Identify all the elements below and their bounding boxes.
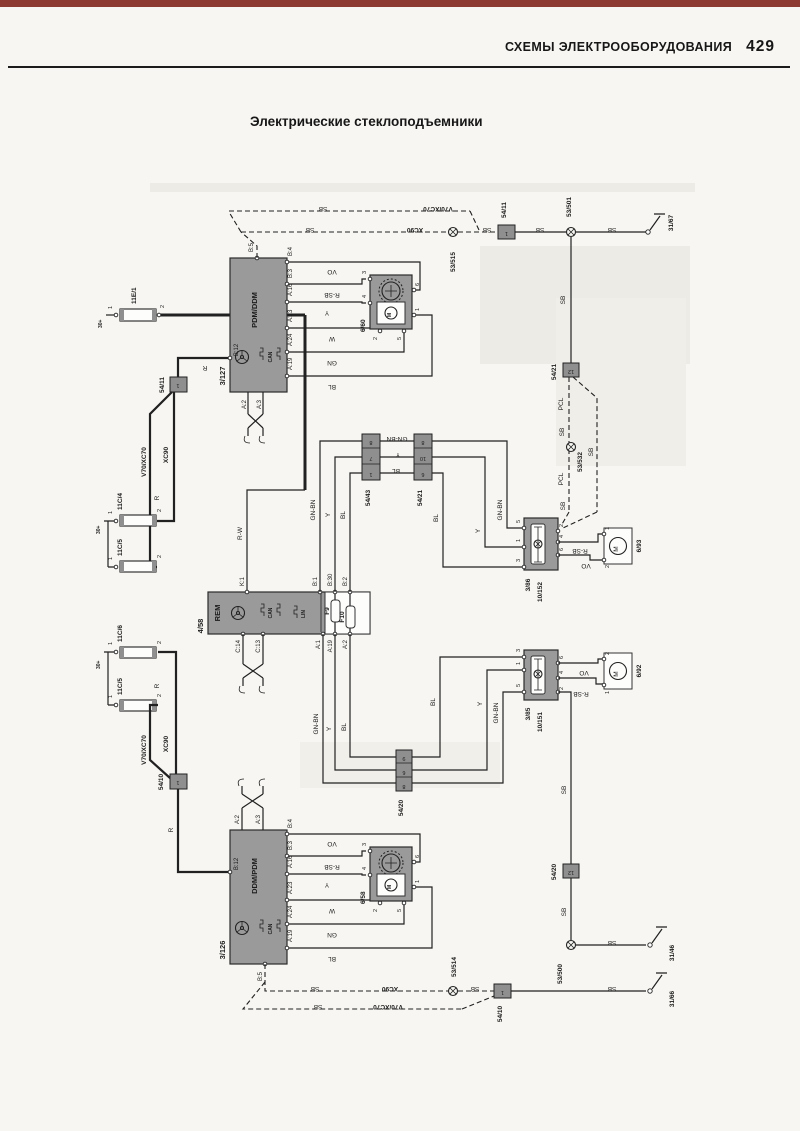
can-bus-label: CAN xyxy=(268,923,274,934)
variant-links-top: V70/XC70 XC90 R xyxy=(141,392,174,567)
wire-label-gn: GN xyxy=(327,931,337,938)
block-pin: 8 xyxy=(402,783,405,789)
wire-label-sb: SB xyxy=(608,985,617,992)
wire-label-y: Y xyxy=(326,726,333,731)
wiring-diagram: 30+ 1 11E/1 2 R-W 1 54/11 R V70/XC70 XC9… xyxy=(0,0,800,1131)
variant-v70-label: V70/XC70 xyxy=(373,1003,403,1010)
unit-pin: 4 xyxy=(362,295,368,298)
block-pin: 10 xyxy=(420,455,426,461)
wire-label-rsb: R-SB xyxy=(572,547,588,554)
fuse-11c4-label: 11C/4 xyxy=(117,493,124,510)
block-pin: 9 xyxy=(402,755,405,761)
connector-pin: 1 xyxy=(501,989,504,995)
battery-30-label: 30+ xyxy=(98,319,104,328)
switch-3-86-id2: 10/152 xyxy=(537,582,544,602)
module-rem-id: 4/58 xyxy=(196,619,205,634)
wire-label-sb: SB xyxy=(559,428,566,437)
variant-v70-label: V70/XC70 xyxy=(141,735,148,765)
fuse-pin: 1 xyxy=(108,695,114,698)
fuse-11c5-label: 11C/5 xyxy=(117,678,124,695)
wire-label-r: R xyxy=(168,827,175,832)
wire-label-bl: BL xyxy=(433,514,440,522)
fuse-pin: 1 xyxy=(108,511,114,514)
pin-a16: A:16 xyxy=(288,283,294,296)
module-rem-name: REM xyxy=(213,605,222,622)
rem-fuse-f10: F10 xyxy=(339,611,346,623)
wire-label-sb: SB xyxy=(608,226,617,233)
fuse-pin: 1 xyxy=(108,306,114,309)
unit-pin: 5 xyxy=(397,337,403,340)
pin-a23: A:23 xyxy=(288,309,294,322)
window-unit-6-60: M 3 4 6 1 2 5 6/60 xyxy=(360,271,421,340)
switch-pin: 5 xyxy=(516,520,522,523)
wire-label-bl: BL xyxy=(430,698,437,706)
ground-31-66-label: 31/66 xyxy=(669,990,676,1007)
window-unit-6-58: M 3 4 6 1 2 5 6/58 xyxy=(360,843,421,912)
wire-label-sb: SB xyxy=(483,226,492,233)
pin-a19: A:19 xyxy=(288,357,294,370)
wire-label-sb: SB xyxy=(560,296,567,305)
motor-letter: M xyxy=(613,671,620,676)
connector-54-11-right-label: 54/11 xyxy=(501,202,508,218)
fuse-group-rear: 30+ 1 1 11C/6 11C/5 2 2 V70/XC70 XC90 R … xyxy=(96,625,230,872)
pin-a1: A:1 xyxy=(316,639,322,649)
pin-b5: B:5 xyxy=(258,971,264,981)
pin-a24: A:24 xyxy=(288,333,294,346)
wire-label-sb: SB xyxy=(319,205,328,212)
pin-a19: A:19 xyxy=(328,639,334,652)
variant-xc90-label: XC90 xyxy=(163,446,170,463)
pin-a19: A:19 xyxy=(288,929,294,942)
wire-label-gnbn: GN-BN xyxy=(310,499,317,520)
module-ddm-id: 3/126 xyxy=(218,941,227,960)
joint-53-514-label: 53/514 xyxy=(451,957,458,977)
module-pdm-id: 3/127 xyxy=(218,367,227,386)
block-pin: 6 xyxy=(402,769,405,775)
wire-label-sb: SB xyxy=(561,786,568,795)
fuse-pin: 2 xyxy=(160,305,166,308)
pin-b3: B:3 xyxy=(288,268,294,278)
unit-6-60-label: 6/60 xyxy=(360,319,367,332)
ground-31-67-label: 31/67 xyxy=(668,214,675,231)
joint-53-501-label: 53/501 xyxy=(566,197,573,217)
wire-label-sb: SB xyxy=(471,985,480,992)
block-pin: 7 xyxy=(369,455,372,461)
wire-label-r: R xyxy=(202,364,207,371)
fuse-pin: 2 xyxy=(157,555,163,558)
connector-54-10-label: 54/10 xyxy=(158,773,165,790)
switch-3-85-id: 3/85 xyxy=(525,707,532,720)
wire-label-vo: VO xyxy=(579,669,588,676)
connector-54-20-label: 54/20 xyxy=(551,863,558,880)
variant-xc90-label: XC90 xyxy=(163,735,170,752)
variant-xc90-label: XC90 xyxy=(381,985,398,992)
wire-label-rsb: R-SB xyxy=(324,291,340,298)
wire-label-rw: R-W xyxy=(237,526,244,540)
connector-pin: 1 xyxy=(505,230,508,236)
battery-30-label: 30+ xyxy=(96,525,102,534)
wire-label-vo: VO xyxy=(581,562,590,569)
joint-53-500-label: 53/500 xyxy=(557,964,564,984)
block-pin: 6 xyxy=(421,471,424,477)
wire-label-w: W xyxy=(328,907,335,914)
pin-a3: A:3 xyxy=(257,399,263,409)
switch-3-86-id: 3/86 xyxy=(525,578,532,591)
wire-label-y: Y xyxy=(325,512,332,517)
connector-pin: 12 xyxy=(568,869,574,875)
wire-label-r: R xyxy=(154,683,161,688)
switch-3-86: 5 1 3 2 4 6 3/86 10/152 R-SB VO M 1 2 6/… xyxy=(516,518,643,602)
pin-b12: B:12 xyxy=(234,857,240,870)
connector-54-20-block-label: 54/20 xyxy=(398,799,405,816)
motor-letter: M xyxy=(387,313,393,317)
wire-label-bl: BL xyxy=(340,511,347,519)
wire-label-y: Y xyxy=(395,451,400,458)
pin-b12: B:12 xyxy=(234,343,240,356)
bottom-ground-run: SB XC90 SB SB V70/XC70 53/514 1 54/10 SB… xyxy=(243,957,676,1022)
can-bus-label: CAN xyxy=(268,607,274,618)
pin-b2: B:2 xyxy=(343,576,349,586)
switch-pin: 5 xyxy=(516,684,522,687)
wire-label-gnbn: GN-BN xyxy=(497,499,504,520)
switch-3-85-id2: 10/151 xyxy=(537,712,544,732)
variant-v70-label: V70/XC70 xyxy=(141,447,148,477)
rem-upper-wires: GN-BN Y BL 8 7 1 54/43 8 10 6 54/21 GN-B… xyxy=(310,434,522,592)
ground-31-46-label: 31/46 xyxy=(669,944,676,961)
wire-label-w: W xyxy=(328,335,335,342)
manual-page: СХЕМЫ ЭЛЕКТРООБОРУДОВАНИЯ429 Электрическ… xyxy=(0,0,800,1131)
unit-pin: 3 xyxy=(362,843,368,846)
fuse-group-front: 30+ 1 1 11C/4 11C/5 2 2 xyxy=(96,493,163,572)
switch-pin: 1 xyxy=(516,662,522,665)
motor-6-93-label: 6/93 xyxy=(636,539,643,552)
module-pdm: PDM/DDM CAN 3/127 B:12 B:5 A:2 A:3 xyxy=(218,242,287,443)
motor-letter: M xyxy=(387,885,393,889)
connector-pin: 1 xyxy=(176,779,179,785)
unit-6-58-label: 6/58 xyxy=(360,891,367,904)
motor-pin: 2 xyxy=(605,565,611,568)
pin-a2: A:2 xyxy=(235,814,241,824)
fuse-11c5-label: 11C/5 xyxy=(117,539,124,556)
unit-pin: 3 xyxy=(362,271,368,274)
module-pdm-name: PDM/DDM xyxy=(250,292,259,328)
switch-pin: 2 xyxy=(559,524,565,527)
switch-pin: 4 xyxy=(559,535,565,538)
fuse-pin: 2 xyxy=(157,641,163,644)
lower-ground-chain: 12 54/20 SB 53/500 SB 31/46 xyxy=(551,863,676,983)
wire-label-sb: SB xyxy=(311,985,320,992)
pin-b5: B:5 xyxy=(249,242,255,252)
unit-pin: 2 xyxy=(373,337,379,340)
connector-54-21-block-label: 54/21 xyxy=(417,489,424,506)
motor-letter: M xyxy=(613,546,620,551)
pin-b30: B:30 xyxy=(328,573,334,586)
connector-54-10-right-label: 54/10 xyxy=(497,1005,504,1022)
fuse-pin: 2 xyxy=(157,694,163,697)
block-pin: 1 xyxy=(369,471,372,477)
wire-label-sb: SB xyxy=(561,908,568,917)
motor-pin: 1 xyxy=(605,691,611,694)
switch-pin: 6 xyxy=(559,548,565,551)
motor-pin: 1 xyxy=(605,527,611,530)
wire-label-gnbn: GN-BN xyxy=(386,435,407,442)
wire-label-vo: VO xyxy=(327,268,336,275)
switch-3-85: 3 1 5 6 4 2 3/85 10/151 VO R-SB M 2 1 6/… xyxy=(516,649,643,864)
fuse-pin: 1 xyxy=(108,557,114,560)
wire-label-rsb: R-SB xyxy=(324,863,340,870)
unit-pin: 1 xyxy=(415,308,421,311)
pin-c14: C:14 xyxy=(236,639,242,652)
switch-pin: 3 xyxy=(516,559,522,562)
wire-label-y: Y xyxy=(324,881,329,888)
module-ddm-name: DDM/PDM xyxy=(250,858,259,894)
wire-label-bl: BL xyxy=(328,383,336,390)
pin-b4: B:4 xyxy=(288,818,294,828)
variant-xc90-label: XC90 xyxy=(406,226,423,233)
unit-pin: 2 xyxy=(373,909,379,912)
pin-a2: A:2 xyxy=(242,399,248,409)
joint-53-532-label: 53/532 xyxy=(577,452,584,472)
unit-pin: 1 xyxy=(415,880,421,883)
switch-pin: 4 xyxy=(559,671,565,674)
rem-fuse-f9: F9 xyxy=(324,607,331,615)
wire-label-sb: SB xyxy=(536,226,545,233)
connector-54-11-label: 54/11 xyxy=(159,377,166,393)
lin-bus-label: LIN xyxy=(301,610,307,618)
wire-label-pcl: PCL xyxy=(558,472,565,485)
pin-c13: C:13 xyxy=(256,639,262,652)
pin-b3: B:3 xyxy=(288,840,294,850)
wire-label-bl: BL xyxy=(392,467,400,474)
pin-a23: A:23 xyxy=(288,881,294,894)
switch-pin: 6 xyxy=(559,656,565,659)
rem-lower-wires: GN-BN Y BL 9 6 8 54/20 BL Y GN-BN xyxy=(313,634,522,816)
battery-30-label: 30+ xyxy=(96,660,102,669)
switch-pin: 1 xyxy=(516,539,522,542)
block-pin: 8 xyxy=(421,439,424,445)
wire-label-y: Y xyxy=(477,701,484,706)
wire-label-bl: BL xyxy=(341,723,348,731)
motor-pin: 2 xyxy=(605,652,611,655)
wire-label-vo: VO xyxy=(327,840,336,847)
wire-label-sb: SB xyxy=(560,502,567,511)
module-rem: F9 F10 REM 4/58 CAN LIN K:1 B:1 B:30 B:2… xyxy=(196,573,370,693)
wire-label-gnbn: GN-BN xyxy=(313,713,320,734)
wire-label-y: Y xyxy=(324,309,329,316)
wire-label-sb: SB xyxy=(608,939,617,946)
module-ddm: DDM/PDM CAN 3/126 B:12 A:2 A:3 B:5 xyxy=(218,779,287,981)
wire-label-gnbn: GN-BN xyxy=(493,702,500,723)
pin-k1: K:1 xyxy=(240,576,246,586)
wire-label-r: R xyxy=(154,495,161,500)
pin-a24: A:24 xyxy=(288,905,294,918)
unit-pin: 4 xyxy=(362,867,368,870)
fuse-pin: 2 xyxy=(157,509,163,512)
connector-54-43-label: 54/43 xyxy=(365,489,372,506)
motor-6-92-label: 6/92 xyxy=(636,664,643,677)
pin-a3: A:3 xyxy=(256,814,262,824)
wire-label-sb: SB xyxy=(588,448,595,457)
wire-label-gn: GN xyxy=(327,359,337,366)
pin-a16: A:16 xyxy=(288,855,294,868)
fuse-11c6-label: 11C/6 xyxy=(117,625,124,642)
connector-pin: 12 xyxy=(568,368,574,374)
switch-pin: 3 xyxy=(516,649,522,652)
joint-53-515-label: 53/515 xyxy=(450,252,457,272)
variant-v70-label: V70/XC70 xyxy=(423,205,453,212)
unit-pin: 5 xyxy=(397,909,403,912)
can-bus-label: CAN xyxy=(268,351,274,362)
wire-label-bl: BL xyxy=(328,955,336,962)
pin-a2: A:2 xyxy=(343,639,349,649)
switch-pin: 2 xyxy=(559,687,565,690)
unit-pin: 6 xyxy=(415,283,421,286)
fuse-pin: 1 xyxy=(108,642,114,645)
connector-54-21-label: 54/21 xyxy=(551,363,558,380)
wire-label-y: Y xyxy=(475,528,482,533)
unit-pin: 6 xyxy=(415,855,421,858)
block-pin: 8 xyxy=(369,439,372,445)
wire-label-sb: SB xyxy=(314,1003,323,1010)
pin-b1: B:1 xyxy=(313,576,319,586)
fuse-11e1-label: 11E/1 xyxy=(131,287,138,304)
pin-b4: B:4 xyxy=(288,246,294,256)
wire-label-sb: SB xyxy=(306,226,315,233)
wire-label-rsb: R-SB xyxy=(573,690,589,697)
connector-pin: 1 xyxy=(176,382,179,388)
wire-label-pcl: PCL xyxy=(558,397,565,410)
